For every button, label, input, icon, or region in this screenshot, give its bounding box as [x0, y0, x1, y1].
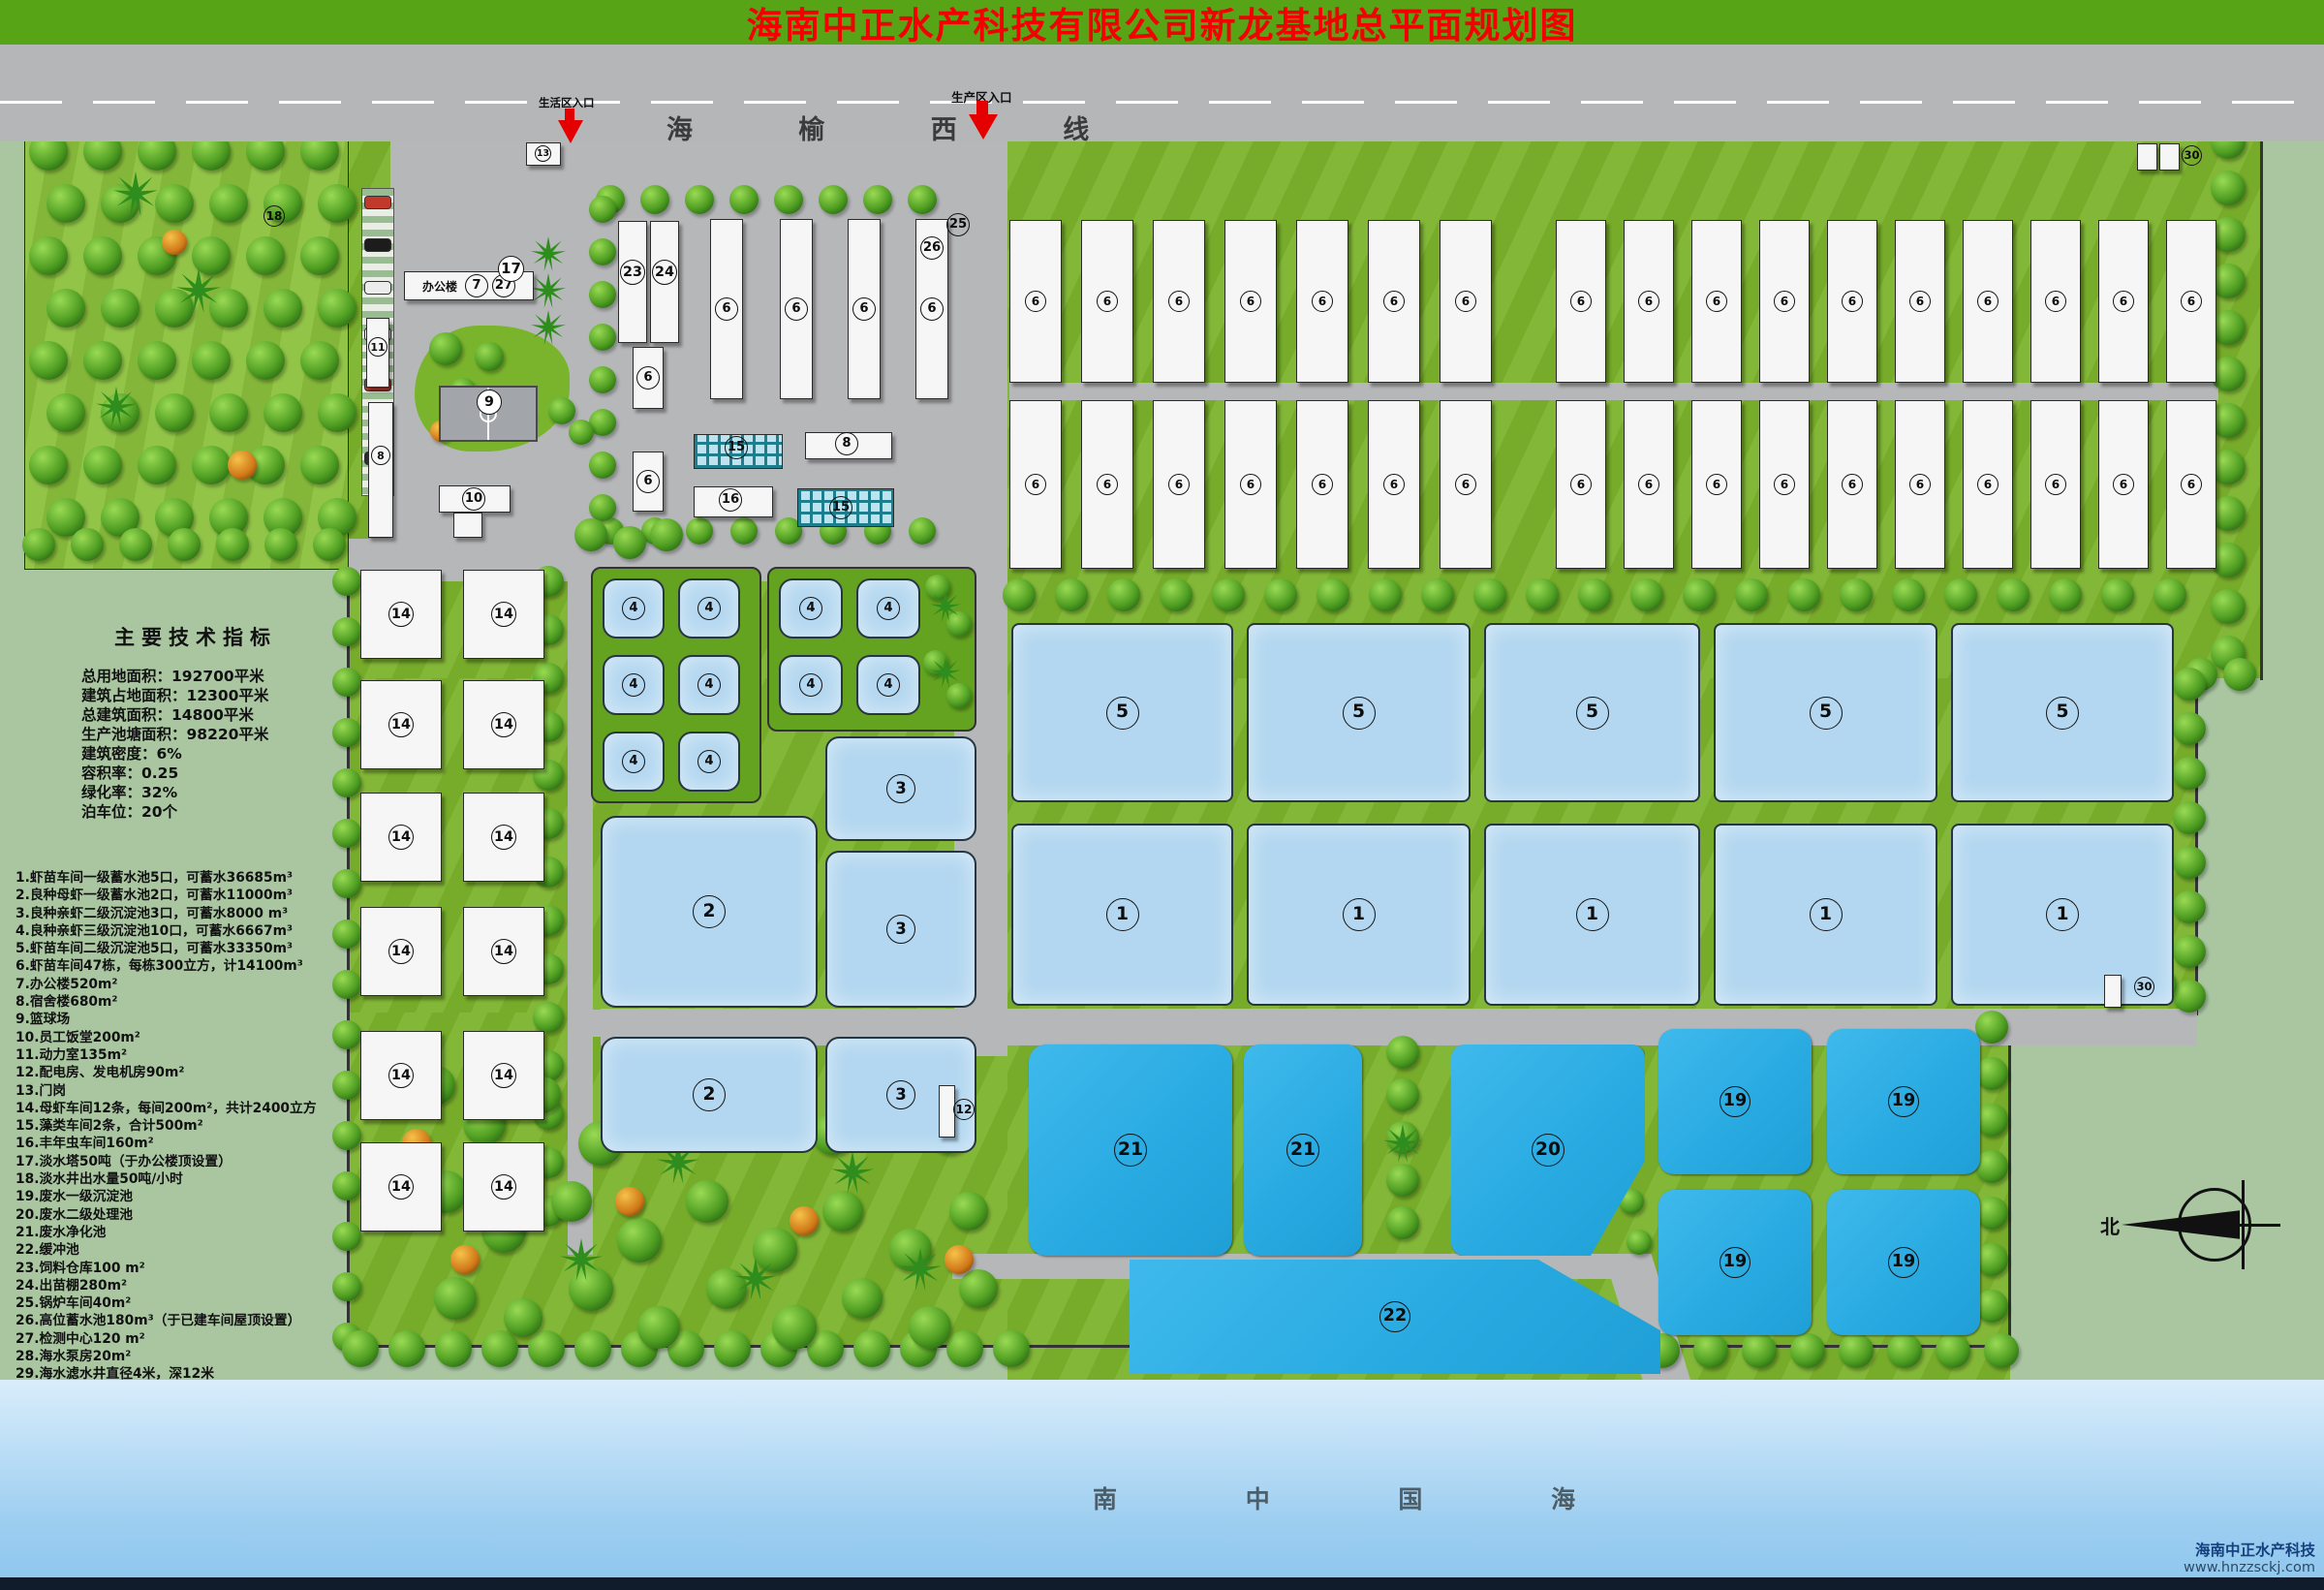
legend-item: 3.良种亲虾二级沉淀池3口，可蓄水8000 m³ [15, 905, 317, 922]
tree-icon [2173, 757, 2206, 790]
mother-shrimp-workshop: 14 [360, 680, 442, 769]
tree-icon [1944, 578, 1977, 611]
tree-icon [1386, 1078, 1419, 1111]
marker-19: 19 [1888, 1086, 1919, 1117]
mother-shrimp-workshop: 14 [360, 907, 442, 996]
tree-icon [332, 1020, 361, 1049]
marker-6: 6 [1909, 291, 1931, 312]
marker-3: 3 [886, 1080, 915, 1109]
marker-12: 12 [953, 1099, 975, 1120]
post-house-a [2137, 143, 2157, 171]
tree-icon [46, 393, 85, 432]
tree-icon [29, 446, 68, 484]
shrimp-workshop: 6 [2166, 400, 2216, 569]
tree-icon [119, 528, 152, 561]
secondary-settling-pond: 5 [1951, 623, 2174, 802]
tree-icon [1693, 1333, 1728, 1368]
marker-9: 9 [477, 390, 502, 415]
tree-icon [246, 236, 285, 275]
tree-icon [946, 1330, 983, 1367]
tree-icon [332, 1222, 361, 1251]
tree-icon [22, 528, 55, 561]
marker-25: 25 [946, 213, 970, 236]
tree-icon [1369, 578, 1402, 611]
shrimp-workshop: 6 [1895, 400, 1945, 569]
marker-14: 14 [491, 602, 516, 627]
secondary-settling-pond: 5 [1247, 623, 1471, 802]
tree-icon [1317, 578, 1349, 611]
marker-30: 30 [2134, 977, 2154, 997]
marker-19: 19 [1720, 1247, 1751, 1278]
tree-icon [853, 1330, 890, 1367]
tree-icon [714, 1330, 751, 1367]
tree-icon [1212, 578, 1245, 611]
tree-icon [1975, 1104, 2008, 1137]
reservoir-pond-2: 2 [601, 1037, 818, 1153]
tree-icon [1984, 1333, 2019, 1368]
marker-24: 24 [652, 260, 677, 285]
tree-icon [772, 1305, 817, 1350]
tree-icon [46, 184, 85, 223]
indicators-heading: 主要技术指标 [114, 622, 277, 651]
shrimp-workshop: 6 [1440, 220, 1492, 383]
compass: 北 [2083, 1184, 2277, 1265]
tree-icon [1735, 578, 1768, 611]
marker-4: 4 [877, 673, 900, 697]
tree-icon [589, 452, 616, 479]
workshop-long-2: 6 [780, 219, 813, 399]
marker-4: 4 [622, 750, 645, 773]
shrimp-workshop: 6 [1296, 400, 1348, 569]
marker-6: 6 [1025, 291, 1046, 312]
primary-reservoir-pond: 1 [1011, 824, 1233, 1006]
legend-item: 23.饲料仓库100 m² [15, 1260, 317, 1277]
tree-icon [332, 617, 361, 646]
shrimp-workshop: 6 [2030, 400, 2081, 569]
mother-shrimp-workshop: 14 [360, 570, 442, 659]
marker-6: 6 [785, 297, 808, 321]
tree-icon [434, 1277, 477, 1320]
tree-icon [46, 289, 85, 327]
shrimp-workshop: 6 [1009, 220, 1062, 383]
shrimp-workshop: 6 [1556, 400, 1606, 569]
logo-website: www.hnzzsckj.com [2122, 1560, 2315, 1575]
legend-item: 1.虾苗车间一级蓄水池5口，可蓄水36685m³ [15, 869, 317, 887]
tree-icon [1473, 578, 1506, 611]
marker-21: 21 [1286, 1134, 1319, 1167]
marker-2: 2 [693, 895, 726, 928]
tree-icon [168, 528, 201, 561]
compass-hline [2172, 1224, 2280, 1227]
post-house-b [2159, 143, 2180, 171]
tree-icon [569, 420, 594, 445]
tree-icon [300, 236, 339, 275]
tree-icon [332, 1272, 361, 1301]
marker-6: 6 [1638, 474, 1659, 495]
workshop-small-2: 6 [633, 452, 664, 512]
marker-6: 6 [1455, 474, 1476, 495]
shrimp-workshop: 6 [2098, 220, 2149, 383]
tree-icon [2173, 668, 2206, 701]
marker-6: 6 [852, 297, 876, 321]
mother-shrimp-workshop: 14 [360, 1031, 442, 1120]
tree-icon [29, 341, 68, 380]
autumn-tree-icon [615, 1187, 644, 1216]
marker-6: 6 [1706, 291, 1727, 312]
tree-icon [263, 393, 302, 432]
tree-icon [71, 528, 104, 561]
site-plan-canvas: 办公楼7271711891013182324666626256615816156… [0, 0, 2324, 1590]
legend-item: 24.出苗棚280m² [15, 1277, 317, 1294]
tree-icon [332, 920, 361, 949]
marker-16: 16 [719, 488, 742, 512]
shrimp-workshop: 6 [1296, 220, 1348, 383]
entrance-life-arrow-icon [558, 120, 583, 143]
marker-6: 6 [715, 297, 738, 321]
shrimp-workshop: 6 [1224, 220, 1277, 383]
tree-icon [551, 1181, 592, 1222]
shrimp-workshop: 6 [1081, 220, 1133, 383]
car-icon [364, 238, 391, 252]
dormitory-building [368, 402, 393, 538]
tree-icon [949, 1192, 988, 1231]
autumn-tree-icon [790, 1206, 819, 1235]
tree-icon [1887, 1333, 1922, 1368]
workshop-long-3: 6 [848, 219, 881, 399]
tree-icon [29, 236, 68, 275]
tree-icon [1787, 578, 1820, 611]
legend-item: 27.检测中心120 m² [15, 1330, 317, 1348]
marker-21: 21 [1114, 1134, 1147, 1167]
tree-icon [313, 528, 346, 561]
marker-4: 4 [877, 597, 900, 620]
entrance-production-arrow-icon [969, 114, 998, 140]
marker-7: 7 [465, 274, 488, 297]
tree-icon [617, 1218, 662, 1263]
marker-6: 6 [1977, 474, 1999, 495]
autumn-tree-icon [162, 230, 187, 255]
marker-17: 17 [498, 256, 524, 282]
tree-icon [1975, 1290, 2008, 1323]
tree-icon [1055, 578, 1088, 611]
marker-6: 6 [2181, 291, 2202, 312]
legend-item: 12.配电房、发电机房90m² [15, 1064, 317, 1081]
shrimp-workshop: 6 [2166, 220, 2216, 383]
tree-icon [589, 366, 616, 393]
tree-icon [332, 567, 361, 596]
legend-list: 1.虾苗车间一级蓄水池5口，可蓄水36685m³2.良种母虾一级蓄水池2口，可蓄… [15, 869, 317, 1401]
tree-icon [1997, 578, 2030, 611]
tree-icon [192, 341, 231, 380]
marker-4: 4 [799, 673, 822, 697]
tree-icon [1421, 578, 1454, 611]
tree-icon [574, 1330, 611, 1367]
tree-icon [908, 185, 937, 214]
road-workshop-gap [1009, 383, 2218, 400]
logo-company: 海南中正水产科技 [2122, 1539, 2315, 1560]
tree-icon [1264, 578, 1297, 611]
marker-6: 6 [2181, 474, 2202, 495]
marker-4: 4 [622, 673, 645, 697]
tree-icon [1526, 578, 1559, 611]
tree-icon [318, 393, 356, 432]
marker-11: 11 [368, 337, 387, 357]
marker-15: 15 [725, 436, 748, 459]
marker-4: 4 [622, 597, 645, 620]
tree-icon [946, 611, 972, 637]
marker-6: 6 [1025, 474, 1046, 495]
shrimp-workshop: 6 [1224, 400, 1277, 569]
tree-icon [1936, 1333, 1970, 1368]
marker-6: 6 [1842, 474, 1863, 495]
primary-reservoir-pond: 1 [1247, 824, 1471, 1006]
marker-1: 1 [1343, 898, 1376, 931]
tree-icon [332, 1171, 361, 1200]
marker-15: 15 [829, 496, 852, 519]
marker-5: 5 [1810, 697, 1843, 730]
tree-icon [2173, 846, 2206, 879]
purification-pond: 21 [1244, 1044, 1362, 1256]
waste-settling-pond: 19 [1658, 1029, 1812, 1174]
shrimp-workshop: 6 [1691, 220, 1742, 383]
marker-6: 6 [1455, 291, 1476, 312]
shrimp-workshop: 6 [1009, 400, 1062, 569]
tree-icon [101, 289, 139, 327]
shrimp-workshop: 6 [1624, 400, 1674, 569]
marker-6: 6 [1706, 474, 1727, 495]
marker-3: 3 [886, 915, 915, 944]
tree-icon [435, 1330, 472, 1367]
marker-26: 26 [920, 236, 944, 260]
tree-icon [216, 528, 249, 561]
settling-pond-3rd: 4 [779, 655, 843, 715]
tree-icon [959, 1269, 998, 1308]
shrimp-workshop: 6 [1440, 400, 1492, 569]
indicator-line: 总用地面积：192700平米 [81, 667, 268, 686]
legend-item: 17.淡水塔50吨（于办公楼顶设置） [15, 1153, 317, 1170]
tree-icon [138, 341, 176, 380]
marker-14: 14 [388, 602, 414, 627]
marker-6: 6 [1774, 474, 1795, 495]
marker-6: 6 [1168, 474, 1190, 495]
marker-6: 6 [1240, 474, 1261, 495]
settling-pond-3rd: 4 [603, 578, 665, 639]
tree-icon [192, 446, 231, 484]
tree-icon [2173, 935, 2206, 968]
tree-icon [1160, 578, 1193, 611]
tree-icon [1975, 1057, 2008, 1090]
shrimp-workshop: 6 [1759, 400, 1810, 569]
indicator-line: 建筑密度：6% [81, 744, 268, 764]
mother-shrimp-workshop: 14 [463, 570, 544, 659]
shrimp-workshop: 6 [1827, 400, 1877, 569]
tree-icon [946, 683, 972, 708]
tree-icon [1975, 1150, 2008, 1183]
tree-icon [1975, 1011, 2008, 1044]
marker-14: 14 [388, 712, 414, 737]
tree-icon [685, 185, 714, 214]
tree-icon [318, 184, 356, 223]
shrimp-workshop: 6 [1153, 400, 1205, 569]
marker-1: 1 [2046, 898, 2079, 931]
tree-icon [475, 342, 504, 371]
tree-icon [2049, 578, 2082, 611]
waste-settling-pond: 19 [1658, 1190, 1812, 1335]
marker-2: 2 [693, 1078, 726, 1111]
highway: 海 榆 西 线 生活区入口 生产区入口 [0, 45, 2324, 141]
secondary-settling-pond: 5 [1484, 623, 1700, 802]
tree-icon [1975, 1197, 2008, 1230]
legend-item: 15.藻类车间2条，合计500m² [15, 1117, 317, 1135]
highway-centerline [0, 101, 2324, 104]
shrimp-workshop: 6 [1963, 400, 2013, 569]
indicator-line: 建筑占地面积：12300平米 [81, 686, 268, 705]
autumn-tree-icon [228, 451, 257, 480]
workshop-small-1: 6 [633, 347, 664, 409]
marker-8: 8 [371, 446, 390, 465]
highway-name: 海 榆 西 线 [666, 109, 1137, 146]
marker-6: 6 [1909, 474, 1931, 495]
tree-icon [842, 1278, 883, 1319]
tree-icon [332, 819, 361, 848]
shrimp-workshop: 6 [1081, 400, 1133, 569]
tree-icon [1003, 578, 1036, 611]
mother-shrimp-workshop: 14 [463, 1142, 544, 1231]
marker-14: 14 [388, 1063, 414, 1088]
tree-icon [730, 517, 758, 545]
shrimp-workshop: 6 [2098, 400, 2149, 569]
tree-icon [246, 341, 285, 380]
tree-icon [819, 185, 848, 214]
tree-icon [83, 341, 122, 380]
tree-icon [1386, 1036, 1419, 1069]
tree-icon [388, 1330, 425, 1367]
tree-icon [1840, 578, 1873, 611]
tree-icon [533, 1002, 564, 1033]
secondary-settling-pond: 5 [1714, 623, 1937, 802]
tree-icon [332, 1121, 361, 1150]
marker-19: 19 [1888, 1247, 1919, 1278]
tree-icon [574, 518, 607, 551]
indicator-line: 绿化率：32% [81, 783, 268, 802]
tree-icon [332, 970, 361, 999]
waste-settling-pond: 19 [1827, 1029, 1980, 1174]
settling-pond-3rd: 4 [678, 655, 740, 715]
settling-pond-2nd: 3 [825, 736, 976, 841]
indicator-line: 生产池塘面积：98220平米 [81, 725, 268, 744]
tree-icon [650, 518, 683, 551]
boundary-right-1 [2260, 114, 2263, 680]
marker-4: 4 [697, 750, 721, 773]
marker-6: 6 [1383, 291, 1405, 312]
marker-1: 1 [1576, 898, 1609, 931]
marker-3: 3 [886, 774, 915, 803]
sea-footer-strip [0, 1577, 2324, 1590]
marker-1: 1 [1106, 898, 1139, 931]
tree-icon [589, 238, 616, 265]
tree-icon [686, 1180, 728, 1223]
tree-icon [504, 1298, 542, 1337]
car-icon [364, 196, 391, 209]
marker-8: 8 [835, 432, 858, 455]
settling-pond-3rd: 4 [603, 732, 665, 792]
primary-reservoir-pond: 1 [1714, 824, 1937, 1006]
canteen-building-b [453, 513, 482, 538]
tree-icon [2223, 658, 2256, 691]
legend-item: 21.废水净化池 [15, 1224, 317, 1241]
tree-icon [589, 494, 616, 521]
marker-14: 14 [491, 939, 516, 964]
tree-icon [155, 393, 194, 432]
tree-icon [686, 517, 713, 545]
marker-5: 5 [2046, 697, 2079, 730]
settling-pond-3rd: 4 [856, 655, 920, 715]
tree-icon [548, 397, 575, 424]
legend-item: 16.丰年虫车间160m² [15, 1135, 317, 1152]
tree-icon [2101, 578, 2134, 611]
mother-shrimp-workshop: 14 [463, 793, 544, 882]
tree-icon [528, 1330, 565, 1367]
tree-icon [2211, 589, 2246, 624]
marker-4: 4 [697, 597, 721, 620]
tree-icon [2173, 801, 2206, 834]
marker-6: 6 [1977, 291, 1999, 312]
tree-icon [138, 446, 176, 484]
settling-pond-3rd: 4 [678, 578, 740, 639]
settling-pond-3rd: 4 [856, 578, 920, 639]
tree-icon [209, 289, 248, 327]
tree-icon [2211, 171, 2246, 205]
legend-item: 9.篮球场 [15, 1011, 317, 1028]
office-building-label: 办公楼 [422, 278, 457, 295]
tree-icon [2154, 578, 2186, 611]
settling-pond-3rd: 4 [603, 655, 665, 715]
mother-shrimp-workshop: 14 [360, 793, 442, 882]
legend-item: 19.废水一级沉淀池 [15, 1188, 317, 1205]
title-band: 海南中正水产科技有限公司新龙基地总平面规划图 [0, 0, 2324, 45]
tree-icon [300, 341, 339, 380]
marker-6: 6 [636, 366, 660, 390]
legend-item: 2.良种母虾一级蓄水池2口，可蓄水11000m³ [15, 887, 317, 904]
marker-6: 6 [2113, 474, 2134, 495]
tree-icon [729, 185, 759, 214]
tree-icon [993, 1330, 1030, 1367]
sea-label: 南 中 国 海 [1093, 1481, 1635, 1515]
indicator-line: 泊车位：20个 [81, 802, 268, 822]
tree-icon [569, 1266, 613, 1311]
marker-20: 20 [1532, 1134, 1565, 1167]
tree-icon [332, 668, 361, 697]
marker-10: 10 [462, 487, 485, 511]
tree-icon [863, 185, 892, 214]
marker-14: 14 [491, 825, 516, 850]
marker-23: 23 [620, 260, 645, 285]
legend-item: 4.良种亲虾三级沉淀池10口，可蓄水6667m³ [15, 922, 317, 940]
tree-icon [332, 869, 361, 898]
entrance-production-arrow-stem [976, 101, 988, 114]
tree-icon [1107, 578, 1140, 611]
marker-13: 13 [535, 145, 551, 162]
marker-14: 14 [491, 712, 516, 737]
marker-6: 6 [1168, 291, 1190, 312]
tree-icon [264, 528, 297, 561]
tree-icon [332, 1071, 361, 1100]
map-layer: 办公楼7271711891013182324666626256615816156… [0, 0, 2324, 1590]
secondary-settling-pond: 5 [1011, 623, 1233, 802]
marker-14: 14 [388, 939, 414, 964]
indicators-lines: 总用地面积：192700平米建筑占地面积：12300平米总建筑面积：14800平… [81, 667, 268, 822]
tree-icon [1790, 1333, 1825, 1368]
